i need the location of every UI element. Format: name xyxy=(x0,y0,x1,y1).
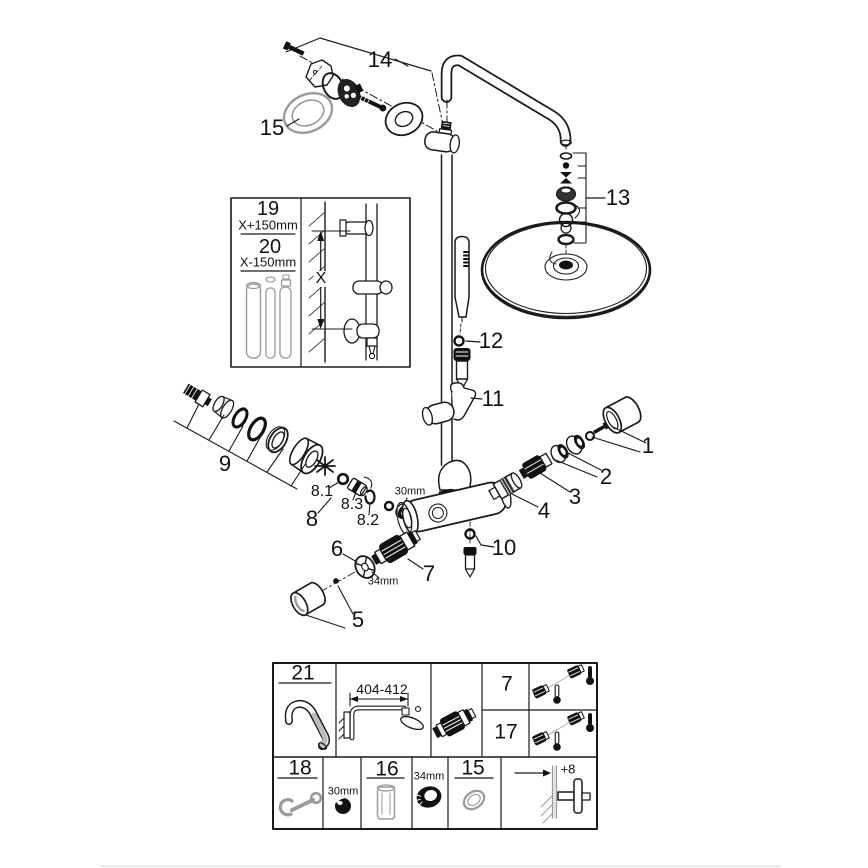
callout-10: 10 xyxy=(492,537,516,559)
table-item-18: 18 xyxy=(288,758,311,779)
table-nut-30mm: 30mm xyxy=(328,787,359,798)
shower-arm-top xyxy=(447,60,572,145)
extension-sleeve-16 xyxy=(378,785,395,819)
callout-5: 5 xyxy=(352,609,364,631)
union-disc xyxy=(334,74,368,110)
callout-13: 13 xyxy=(606,187,630,209)
callout-14: 14 xyxy=(368,49,392,71)
retainer-star xyxy=(315,457,335,475)
dim-30mm-valve: 30mm xyxy=(395,487,426,498)
callout-8: 8 xyxy=(306,508,318,530)
callout-8-2: 8.2 xyxy=(357,513,379,529)
seal-ring-15 xyxy=(278,86,339,141)
dim-34mm-wheel: 34mm xyxy=(368,577,399,588)
flow-restrictor xyxy=(557,187,576,201)
callout-2: 2 xyxy=(600,466,612,488)
table-arm-length: 404-412 xyxy=(356,682,407,696)
leader-lines xyxy=(395,59,408,66)
table-ring-nut-34mm: 34mm xyxy=(414,772,445,783)
callout-8-3: 8.3 xyxy=(341,497,363,513)
callout-11: 11 xyxy=(482,388,505,410)
callout-4: 4 xyxy=(538,500,550,522)
mount-screw-long xyxy=(358,94,388,113)
union-parts-9 xyxy=(174,382,327,489)
footer-divider xyxy=(101,866,781,868)
temperature-knob-1 xyxy=(600,394,645,436)
table-wall-offset: +8 xyxy=(561,763,576,776)
table-item-16: 16 xyxy=(375,759,398,780)
callout-9: 9 xyxy=(219,453,231,475)
table-item-15: 15 xyxy=(461,758,484,779)
table-item-17: 17 xyxy=(494,722,517,743)
diagram-canvas xyxy=(0,0,868,868)
drain-plug-10 xyxy=(464,522,495,577)
parts-table xyxy=(273,663,597,829)
head-connector-stack-13 xyxy=(557,146,606,255)
nut-30mm-tool xyxy=(335,798,351,814)
inset-item-19: 19 xyxy=(257,199,279,219)
callout-6: 6 xyxy=(331,538,343,560)
shutoff-knob-5 xyxy=(287,580,328,618)
callout-3: 3 xyxy=(569,486,581,508)
pipe-clamp xyxy=(424,119,462,154)
cartridge-chain-right xyxy=(487,394,646,507)
mount-screw-short xyxy=(283,41,305,57)
table-item-7: 7 xyxy=(501,674,513,695)
hand-shower xyxy=(455,237,469,335)
rain-shower-head xyxy=(482,222,650,318)
table-item-21: 21 xyxy=(291,663,314,684)
callout-8-1: 8.1 xyxy=(311,484,333,500)
inset-dim-19: X+150mm xyxy=(238,219,298,232)
inset-x-ref: X xyxy=(314,271,329,287)
callout-1: 1 xyxy=(642,435,654,457)
wall-mount-assembly-14 xyxy=(278,38,443,141)
hose-washer-12 xyxy=(455,337,481,346)
callout-7: 7 xyxy=(423,563,435,585)
inset-dim-20: X-150mm xyxy=(240,256,296,269)
callout-bracket-9 xyxy=(174,404,306,489)
diagram-page: 14 15 13 12 11 9 8.1 8.3 8.2 8 30mm 10 7… xyxy=(0,0,868,868)
callout-12: 12 xyxy=(479,330,503,352)
callout-15: 15 xyxy=(260,117,284,139)
